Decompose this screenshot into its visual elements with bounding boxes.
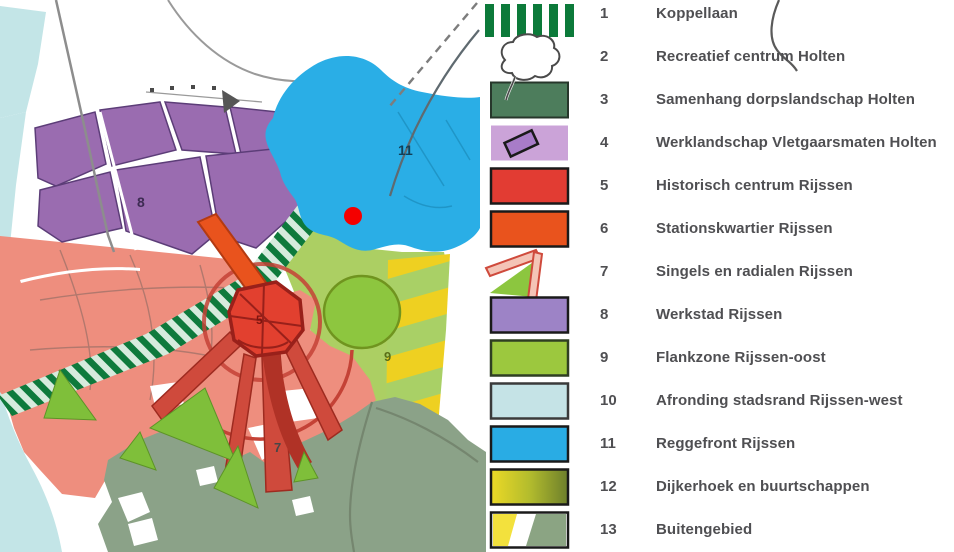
label-flankzone: 9	[384, 349, 391, 364]
label-werkstad: 8	[137, 194, 145, 210]
map-region: 8 11 9 7 5	[0, 0, 490, 552]
structuurvisie-screenshot: 8 11 9 7 5	[0, 0, 954, 552]
historic-center-area	[229, 282, 303, 356]
legend-swatch-historisch	[491, 169, 568, 204]
legend-swatches	[485, 0, 954, 552]
legend-swatch-buitengebied	[491, 513, 568, 548]
legend-swatch-werkstad	[491, 298, 568, 333]
legend-swatch-reggefront	[491, 427, 568, 462]
red-dot-marker	[344, 207, 362, 225]
legend-swatch-afronding	[491, 384, 568, 419]
map-and-legend-graphic: 8 11 9 7 5	[0, 0, 954, 552]
legend-swatch-samenhang	[491, 83, 568, 118]
green-circle	[324, 276, 400, 348]
label-reggefront: 11	[398, 142, 413, 158]
legend-swatch-stationskwartier	[491, 212, 568, 247]
legend-swatch-dijkerhoek	[491, 470, 568, 505]
legend-swatch-flankzone	[491, 341, 568, 376]
legend-swatch-werklandschap	[491, 126, 568, 161]
label-singels: 7	[274, 440, 281, 455]
label-centrum: 5	[256, 313, 263, 327]
